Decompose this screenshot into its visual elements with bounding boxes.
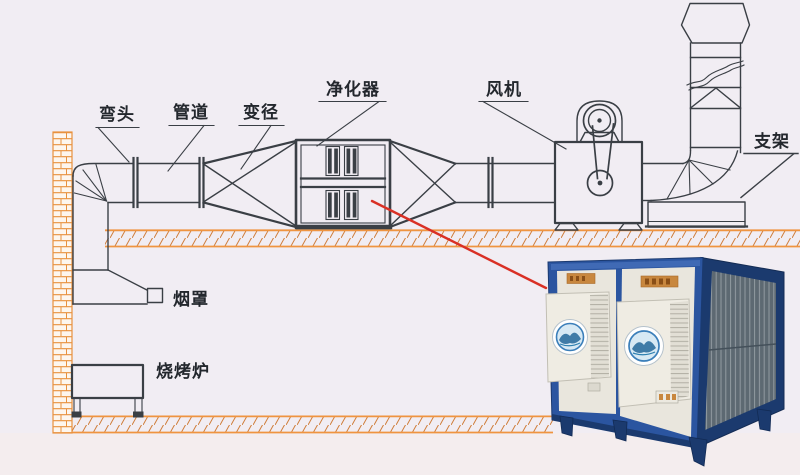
exhaust-system-diagram: 弯头 管道 变径 净化器 风机 支架 烟罩 烧烤炉 xyxy=(0,0,800,475)
brick-wall xyxy=(53,132,72,433)
label-duct: 管道 xyxy=(168,104,214,122)
left-service-panel xyxy=(546,292,611,391)
right-service-panel xyxy=(617,299,691,407)
duct-to-fan xyxy=(455,158,555,207)
label-bracket: 支架 xyxy=(746,133,798,151)
label-purifier: 净化器 xyxy=(319,81,387,99)
label-reducer: 变径 xyxy=(238,104,284,122)
upper-floor-hatch xyxy=(105,230,800,246)
label-hood: 烟罩 xyxy=(168,291,214,309)
support-bracket xyxy=(741,154,798,198)
support-base xyxy=(646,202,747,227)
elbow-gore-lines xyxy=(75,165,107,202)
main-duct xyxy=(134,158,204,207)
fan-unit xyxy=(555,101,642,230)
purifier-filter-slats xyxy=(326,147,358,220)
smoke-hood xyxy=(73,270,163,304)
label-elbow: 弯头 xyxy=(94,106,140,124)
rain-cap xyxy=(682,4,750,44)
label-fan: 风机 xyxy=(480,81,528,99)
purifier-box xyxy=(296,140,390,228)
diagram-canvas xyxy=(0,0,800,475)
exhaust-stack xyxy=(682,4,750,153)
label-grill: 烧烤炉 xyxy=(149,363,217,381)
ground-hatch xyxy=(55,416,553,432)
stack-elbow xyxy=(642,151,738,201)
reducer-expanding xyxy=(204,141,297,227)
bbq-grill xyxy=(72,365,144,418)
